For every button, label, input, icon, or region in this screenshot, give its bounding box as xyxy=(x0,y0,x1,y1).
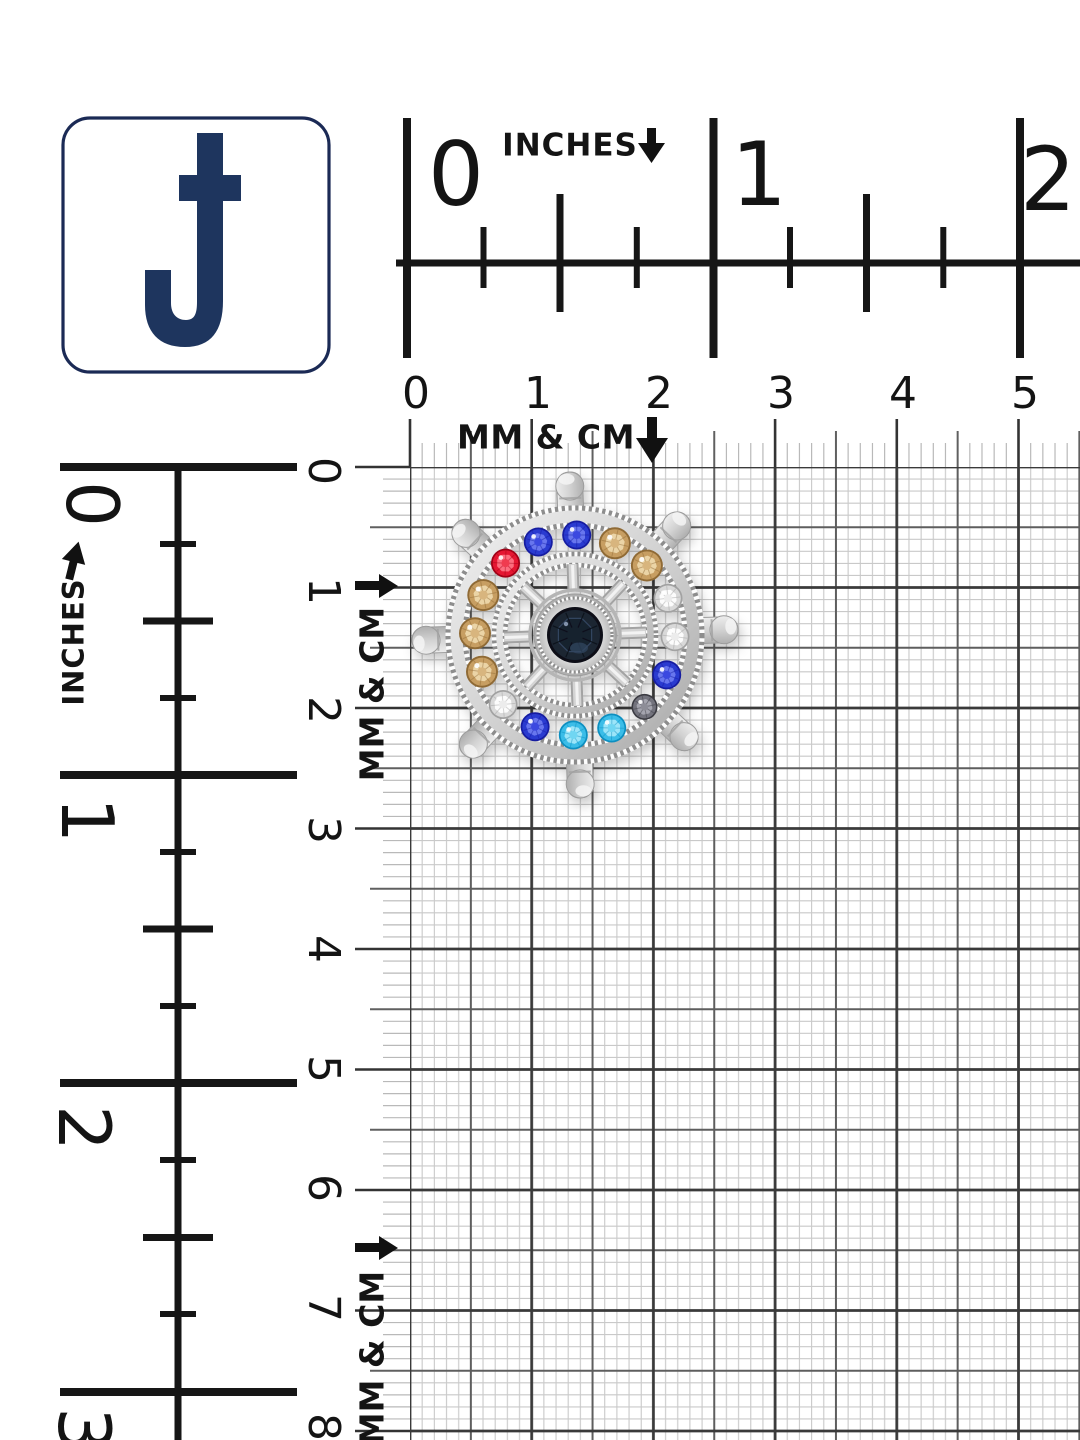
top-cm-down-arrow-icon xyxy=(647,417,657,441)
rhinestone-aqua xyxy=(559,721,588,750)
top-inches-label-2: 2 xyxy=(1020,136,1076,224)
left-cm-label-1: 1 xyxy=(301,577,345,605)
left-cm-label-3: 3 xyxy=(301,816,345,844)
left-cm-label-4: 4 xyxy=(301,935,345,963)
left-inches-label-2: 2 xyxy=(48,1105,120,1151)
left-inches-label-0: 0 xyxy=(56,481,128,527)
rhinestone-blue xyxy=(521,712,550,741)
top-cm-label-1: 1 xyxy=(524,372,552,416)
top-inches-label-1: 1 xyxy=(731,131,787,219)
rhinestone-champagne xyxy=(631,550,663,582)
left-cm-unit-label-top: MM & CM xyxy=(356,607,389,782)
rhinestone-blue xyxy=(652,660,681,689)
top-inches-unit-label: INCHES xyxy=(502,131,638,162)
center-stone xyxy=(547,607,603,663)
left-cm-label-7: 7 xyxy=(301,1294,345,1322)
left-inches-label-1: 1 xyxy=(51,797,123,843)
left-cm-right-arrow-top-icon xyxy=(355,581,381,590)
wheel-spoke xyxy=(577,679,578,706)
rhinestone-red xyxy=(491,549,520,578)
rhinestone-champagne xyxy=(459,617,491,649)
rhinestone-clear xyxy=(489,690,518,719)
ship-wheel-brooch xyxy=(412,472,739,799)
rhinestone-champagne xyxy=(599,527,631,559)
scene-graphic xyxy=(0,0,1080,1440)
brand-logo xyxy=(63,118,329,372)
left-cm-label-0: 0 xyxy=(301,457,345,485)
rhinestone-clear xyxy=(654,584,683,613)
top-inches-label-0: 0 xyxy=(428,131,484,219)
left-inches-unit-label: INCHES xyxy=(60,578,89,705)
top-cm-label-2: 2 xyxy=(645,372,673,416)
wheel-spoke xyxy=(573,564,574,591)
rhinestone-smoke xyxy=(632,694,658,720)
wheel-spoke xyxy=(619,633,646,634)
top-cm-label-0: 0 xyxy=(402,372,430,416)
left-cm-label-6: 6 xyxy=(301,1174,345,1202)
left-inches-label-3: 3 xyxy=(48,1407,120,1440)
rhinestone-blue xyxy=(524,528,553,557)
product-measurement-photo: J 0 1 2 INCHES 0 1 2 3 4 5 MM & CM 0 1 2… xyxy=(0,0,1080,1440)
rhinestone-aqua xyxy=(597,714,626,743)
left-cm-label-8: 8 xyxy=(301,1413,345,1440)
top-cm-label-3: 3 xyxy=(767,372,795,416)
left-cm-unit-label-bottom: MM & CM xyxy=(356,1271,389,1440)
left-inches-up-arrow-icon xyxy=(58,539,91,583)
rhinestone-champagne xyxy=(466,656,498,688)
left-cm-right-arrow-bottom-icon xyxy=(355,1243,381,1252)
rhinestone-champagne xyxy=(467,579,499,611)
rhinestone-blue xyxy=(562,521,591,550)
wheel-spoke xyxy=(504,637,531,638)
left-cm-label-5: 5 xyxy=(301,1055,345,1083)
rhinestone-clear xyxy=(661,622,690,651)
top-cm-label-5: 5 xyxy=(1011,372,1039,416)
top-cm-unit-label: MM & CM xyxy=(457,421,635,454)
left-cm-label-2: 2 xyxy=(301,696,345,724)
top-cm-label-4: 4 xyxy=(889,372,917,416)
